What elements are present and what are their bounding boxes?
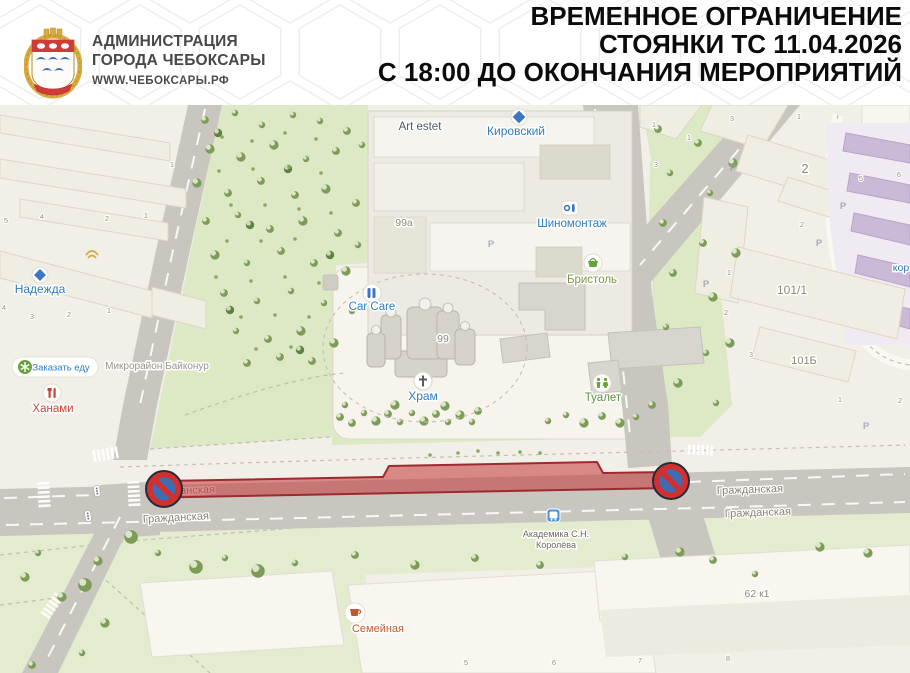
tree bbox=[259, 122, 265, 128]
entrance-number: 5 bbox=[4, 216, 8, 225]
svg-text:62 к1: 62 к1 bbox=[744, 588, 769, 600]
tree bbox=[319, 171, 323, 175]
tree bbox=[694, 139, 702, 147]
poi-baikonur: Микрорайон Байконур bbox=[105, 361, 209, 372]
svg-text:Храм: Храм bbox=[408, 389, 438, 403]
svg-text:кор: кор bbox=[893, 262, 910, 274]
tree bbox=[752, 571, 758, 577]
tree bbox=[308, 357, 316, 365]
svg-text:Семейная: Семейная bbox=[352, 623, 404, 635]
street-label: Гражданская bbox=[725, 506, 792, 520]
entrance-number: 3 bbox=[654, 160, 658, 169]
tree bbox=[329, 211, 333, 215]
tree bbox=[409, 410, 415, 416]
entrance-number: 4 bbox=[40, 212, 44, 221]
tree bbox=[314, 137, 318, 141]
entrance-number: 8 bbox=[726, 654, 730, 663]
tree bbox=[663, 324, 669, 330]
svg-text:101/1: 101/1 bbox=[777, 283, 807, 297]
svg-text:Art estet: Art estet bbox=[399, 121, 443, 133]
tree bbox=[469, 419, 475, 425]
tree bbox=[263, 203, 267, 207]
announcement-poster: АДМИНИСТРАЦИЯ ГОРОДА ЧЕБОКСАРЫ WWW.ЧЕБОК… bbox=[0, 0, 910, 673]
tree bbox=[288, 288, 294, 294]
tree bbox=[298, 216, 307, 225]
entrance-number: 1 bbox=[107, 306, 111, 315]
entrance-number: 1 bbox=[727, 268, 731, 277]
tree bbox=[317, 118, 323, 124]
title-line2: СТОЯНКИ ТС 11.04.2026 bbox=[378, 30, 902, 58]
tree bbox=[296, 346, 304, 354]
org-name-line2: ГОРОДА ЧЕБОКСАРЫ bbox=[92, 51, 266, 70]
tree bbox=[725, 338, 734, 347]
tree bbox=[264, 335, 272, 343]
tree bbox=[226, 306, 234, 314]
tree bbox=[622, 554, 628, 560]
tree bbox=[348, 419, 356, 427]
entrance-number: 3 bbox=[30, 312, 34, 321]
bus-stop-label-line1: Академика С.Н. bbox=[523, 529, 589, 539]
tree bbox=[326, 251, 334, 259]
tree bbox=[731, 248, 740, 257]
poi-art-estet: Art estet bbox=[399, 121, 443, 133]
tree bbox=[496, 451, 500, 455]
tree bbox=[341, 266, 350, 275]
tree bbox=[287, 165, 291, 169]
hexagon-decoration bbox=[249, 0, 330, 23]
entrance-number: 2 bbox=[800, 220, 804, 229]
entrance-number: 2 bbox=[105, 214, 109, 223]
city-map: ГражданскаяГражданскаяГражданскаяГраждан… bbox=[0, 105, 910, 673]
tree bbox=[252, 565, 265, 578]
tree bbox=[236, 152, 245, 161]
tree bbox=[352, 199, 360, 207]
tree bbox=[648, 401, 656, 409]
parking-icon: Р bbox=[863, 421, 870, 432]
tree bbox=[713, 400, 719, 406]
tree bbox=[28, 661, 36, 669]
tree bbox=[79, 650, 85, 656]
tree bbox=[667, 170, 673, 176]
tree bbox=[225, 239, 229, 243]
tree bbox=[214, 275, 218, 279]
tree bbox=[222, 555, 228, 561]
tree bbox=[343, 127, 351, 135]
title-line3: С 18:00 ДО ОКОНЧАНИЯ МЕРОПРИЯТИЙ bbox=[378, 58, 902, 86]
city-coat-of-arms-icon bbox=[24, 27, 82, 99]
tree bbox=[251, 167, 255, 171]
tree bbox=[269, 140, 278, 149]
svg-text:Надежда: Надежда bbox=[15, 282, 66, 296]
no-parking-sign-icon bbox=[653, 463, 689, 499]
tree bbox=[57, 592, 66, 601]
tree bbox=[536, 561, 544, 569]
tree bbox=[317, 281, 321, 285]
tree bbox=[205, 144, 214, 153]
tree bbox=[673, 378, 682, 387]
tree bbox=[243, 359, 251, 367]
tree bbox=[35, 550, 41, 556]
tree bbox=[283, 131, 287, 135]
tree bbox=[190, 561, 203, 574]
entrance-number: 6 bbox=[897, 170, 901, 179]
tree bbox=[217, 169, 221, 173]
tree bbox=[266, 225, 274, 233]
tree bbox=[210, 250, 219, 259]
tree bbox=[518, 450, 522, 454]
svg-text:2: 2 bbox=[801, 161, 808, 176]
svg-text:Car Care: Car Care bbox=[349, 301, 396, 313]
restaurant-icon bbox=[43, 384, 61, 402]
tree bbox=[669, 269, 677, 277]
tree bbox=[709, 556, 717, 564]
tree bbox=[476, 449, 480, 453]
tree bbox=[815, 542, 824, 551]
tree bbox=[707, 190, 713, 196]
tree bbox=[79, 579, 92, 592]
entrance-number: 6 bbox=[552, 658, 556, 667]
parking-icon: Р bbox=[816, 238, 823, 249]
entrance-number: 7 bbox=[638, 656, 642, 665]
entrance-number: 1 bbox=[170, 160, 174, 169]
tree bbox=[675, 547, 684, 556]
tree bbox=[296, 326, 305, 335]
tree bbox=[239, 315, 243, 319]
tree bbox=[321, 184, 330, 193]
entrance-number: 5 bbox=[859, 174, 863, 183]
entrance-number: 2 bbox=[898, 396, 902, 405]
tree bbox=[293, 237, 297, 241]
tree bbox=[276, 353, 284, 361]
tree bbox=[432, 410, 440, 418]
org-website: WWW.ЧЕБОКСАРЫ.РФ bbox=[92, 75, 266, 87]
parking-icon: Р bbox=[703, 279, 710, 290]
entrance-number: 1 bbox=[144, 211, 148, 220]
tree bbox=[249, 279, 253, 283]
entrance-number: 5 bbox=[464, 658, 468, 667]
tree bbox=[303, 156, 309, 162]
tree bbox=[699, 239, 707, 247]
svg-text:Шиномонтаж: Шиномонтаж bbox=[537, 218, 607, 230]
bus-stop-label-line2: Королёва bbox=[536, 540, 576, 550]
tree bbox=[250, 139, 254, 143]
tree bbox=[257, 177, 265, 185]
svg-text:Заказать еду: Заказать еду bbox=[32, 363, 90, 374]
street-label: Гражданская bbox=[717, 483, 784, 497]
tree bbox=[633, 414, 639, 420]
tree bbox=[419, 416, 428, 425]
tree bbox=[703, 350, 709, 356]
org-name-block: АДМИНИСТРАЦИЯ ГОРОДА ЧЕБОКСАРЫ WWW.ЧЕБОК… bbox=[92, 32, 266, 87]
tree bbox=[155, 550, 161, 556]
tree bbox=[100, 618, 109, 627]
tree bbox=[233, 328, 239, 334]
tree bbox=[579, 418, 588, 427]
toilet-icon bbox=[593, 374, 611, 392]
svg-text:Кировский: Кировский bbox=[487, 124, 545, 138]
tree bbox=[259, 239, 263, 243]
tree bbox=[125, 531, 138, 544]
no-parking-sign-icon bbox=[146, 471, 182, 507]
entrance-number: 1 bbox=[838, 395, 842, 404]
tree bbox=[292, 560, 298, 566]
entrance-number: 1 bbox=[687, 133, 691, 142]
tree bbox=[410, 560, 419, 569]
tree bbox=[297, 207, 301, 211]
poi-order-food: Заказать еду bbox=[12, 357, 98, 377]
entrance-number: 3 bbox=[749, 350, 753, 359]
tree bbox=[224, 189, 232, 197]
tree bbox=[598, 412, 606, 420]
tree bbox=[355, 242, 361, 248]
header: АДМИНИСТРАЦИЯ ГОРОДА ЧЕБОКСАРЫ WWW.ЧЕБОК… bbox=[0, 0, 910, 105]
tree bbox=[20, 572, 29, 581]
entrance-number: 1 bbox=[797, 112, 801, 121]
entrance-number: 2 bbox=[724, 308, 728, 317]
tree bbox=[244, 260, 250, 266]
tree bbox=[471, 554, 479, 562]
title-line1: ВРЕМЕННОЕ ОГРАНИЧЕНИЕ bbox=[378, 2, 902, 30]
tree bbox=[277, 247, 285, 255]
tree bbox=[229, 203, 233, 207]
hexagon-decoration bbox=[149, 0, 230, 23]
tree bbox=[863, 548, 872, 557]
tree bbox=[220, 135, 224, 139]
parking-icon: Р bbox=[730, 163, 737, 174]
car-wash-icon bbox=[363, 284, 381, 302]
entrance-number: 2 bbox=[67, 310, 71, 319]
tree bbox=[615, 418, 624, 427]
tree bbox=[254, 298, 260, 304]
tree bbox=[563, 412, 569, 418]
tree bbox=[474, 407, 482, 415]
tree bbox=[336, 413, 344, 421]
tree bbox=[291, 191, 299, 199]
hexagon-decoration bbox=[49, 0, 130, 23]
tree bbox=[390, 400, 399, 409]
entrance-number: 3 bbox=[730, 114, 734, 123]
tree bbox=[456, 451, 460, 455]
traffic-light-icon bbox=[84, 510, 91, 522]
tree bbox=[359, 142, 365, 148]
tree bbox=[538, 451, 542, 455]
svg-text:101Б: 101Б bbox=[791, 355, 817, 367]
tree bbox=[329, 338, 338, 347]
tree bbox=[192, 178, 201, 187]
tree bbox=[201, 116, 209, 124]
tree bbox=[332, 147, 340, 155]
tree bbox=[220, 289, 228, 297]
tree bbox=[283, 275, 287, 279]
tree bbox=[334, 229, 342, 237]
tree bbox=[428, 453, 432, 457]
tree bbox=[708, 292, 717, 301]
poi-koro-partial: кор bbox=[893, 262, 910, 274]
tree bbox=[289, 345, 293, 349]
org-name-line1: АДМИНИСТРАЦИЯ bbox=[92, 32, 266, 51]
tree bbox=[235, 212, 241, 218]
svg-text:Бристоль: Бристоль bbox=[567, 274, 617, 286]
svg-text:99а: 99а bbox=[395, 217, 413, 229]
tree bbox=[545, 418, 551, 424]
parking-icon: Р bbox=[488, 239, 495, 250]
hexagon-decoration bbox=[299, 5, 380, 99]
entrance-number: 1 bbox=[652, 120, 656, 129]
poster-title: ВРЕМЕННОЕ ОГРАНИЧЕНИЕ СТОЯНКИ ТС 11.04.2… bbox=[378, 2, 902, 86]
svg-text:99: 99 bbox=[437, 333, 449, 345]
tree bbox=[307, 315, 311, 319]
tree bbox=[371, 416, 380, 425]
svg-text:Туалет: Туалет bbox=[585, 392, 622, 404]
parking-icon: Р bbox=[840, 201, 847, 212]
tree bbox=[659, 219, 667, 227]
tree bbox=[361, 410, 367, 416]
tree bbox=[246, 221, 254, 229]
tree bbox=[273, 313, 277, 317]
tree bbox=[310, 259, 318, 267]
tree bbox=[93, 556, 102, 565]
svg-text:Ханами: Ханами bbox=[32, 403, 73, 415]
tree bbox=[440, 401, 449, 410]
tree bbox=[342, 402, 348, 408]
svg-text:Микрорайон Байконур: Микрорайон Байконур bbox=[105, 361, 209, 372]
entrance-number: 4 bbox=[2, 303, 6, 312]
traffic-light-icon bbox=[93, 485, 100, 497]
tree bbox=[254, 347, 258, 351]
tree bbox=[321, 300, 327, 306]
tree bbox=[290, 112, 296, 118]
tree bbox=[232, 110, 238, 116]
tree bbox=[351, 551, 359, 559]
tree bbox=[202, 217, 210, 225]
